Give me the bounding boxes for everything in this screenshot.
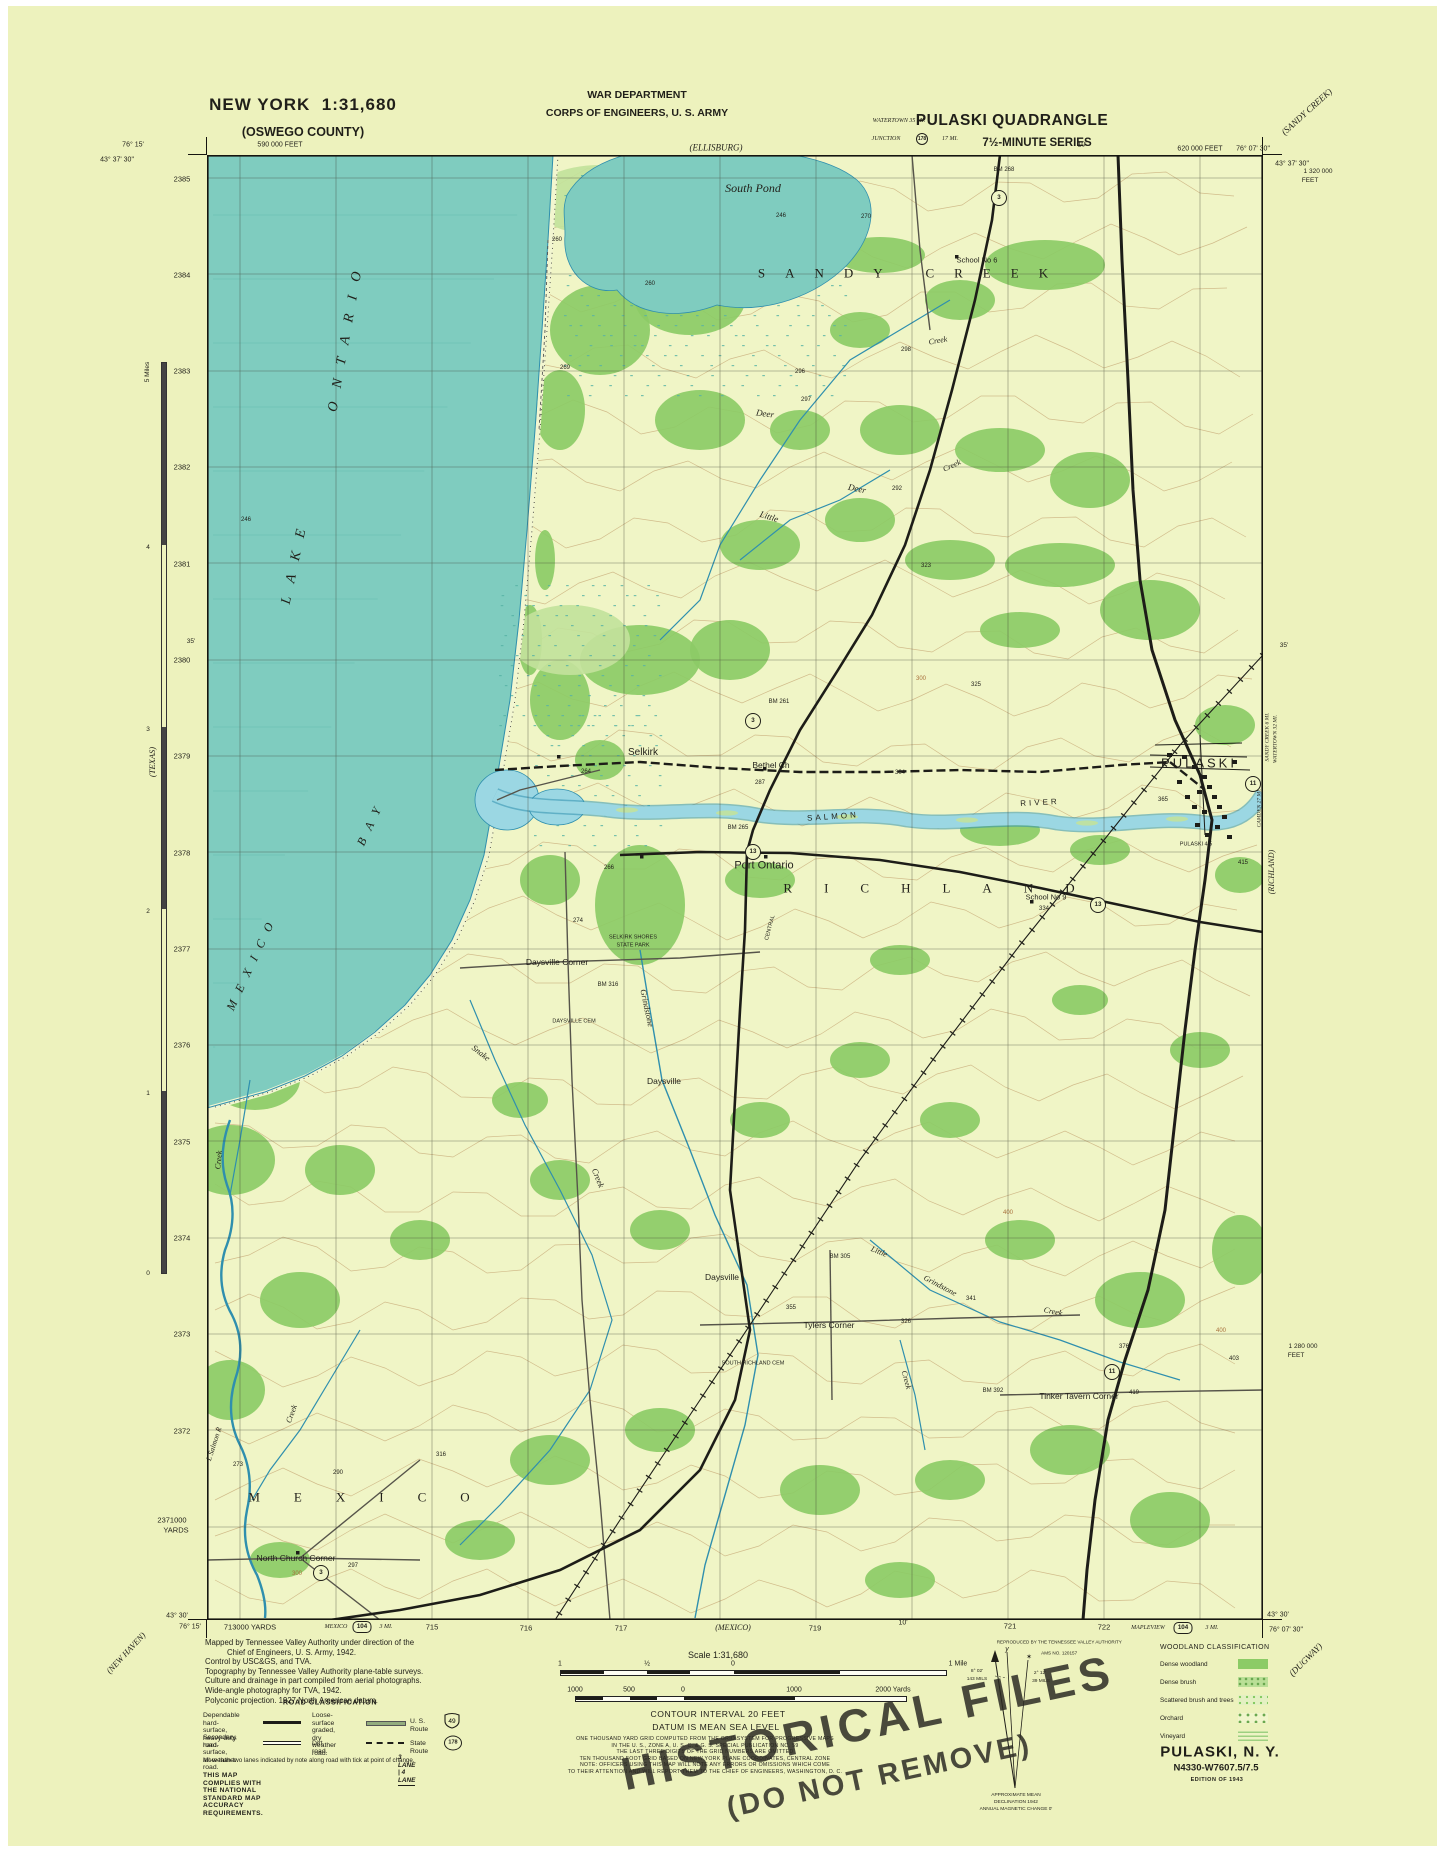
- yard-label: 2000 Yards: [875, 1687, 910, 1694]
- fine-print-line: ONE THOUSAND YARD GRID COMPUTED FROM THE…: [505, 1736, 905, 1743]
- mile-label: 1: [558, 1661, 562, 1668]
- woodland-swatch-vineyard: [1238, 1731, 1268, 1741]
- corner-tick: [1263, 154, 1282, 155]
- edition-note: EDITION OF 1943: [1191, 1777, 1244, 1783]
- dirt-road-label: Dirt road.: [312, 1740, 327, 1755]
- credit-line: Mapped by Tennessee Valley Authority und…: [205, 1638, 585, 1648]
- mile-label: 1 Mile: [949, 1661, 968, 1668]
- road-classification-title: ROAD CLASSIFICATION: [283, 1698, 377, 1707]
- dirt-road-sample: [366, 1742, 404, 1744]
- road-class-text: Secondary, hard-surface,: [203, 1734, 237, 1756]
- us-route-label: U. S. Route: [410, 1718, 428, 1733]
- war-department-line: WAR DEPARTMENT: [587, 89, 687, 101]
- secondary-road-sample: [263, 1741, 301, 1745]
- state-route-label: State Route: [410, 1740, 428, 1755]
- svg-text:49: 49: [448, 1718, 456, 1725]
- woodland-item: Scattered brush and trees: [1160, 1695, 1290, 1713]
- credit-line: Culture and drainage in part compiled fr…: [205, 1676, 585, 1686]
- fine-print-line: THE LAST THREE DIGITS OF THE GRID NUMBER…: [505, 1749, 905, 1756]
- graded-road-sample: [366, 1721, 406, 1726]
- datum-note: DATUM IS MEAN SEA LEVEL: [652, 1722, 779, 1732]
- road-class-text: Dependable hard-surface,: [203, 1712, 240, 1734]
- county-subtitle: (OSWEGO COUNTY): [242, 125, 364, 139]
- woodland-item-label: Vineyard: [1160, 1733, 1185, 1740]
- sheet-code: N4330-W7607.5/7.5: [1173, 1763, 1258, 1774]
- scale-label: Scale 1:31,680: [688, 1650, 748, 1660]
- declination-note: ANNUAL MAGNETIC CHANGE 0': [980, 1807, 1053, 1813]
- fine-print-line: TEN THOUSAND FOOT GRID BASED ON NEW YORK…: [505, 1756, 905, 1763]
- mile-scale-bar: [560, 1670, 947, 1676]
- mapping-credits: Mapped by Tennessee Valley Authority und…: [205, 1638, 585, 1705]
- yard-label: 0: [681, 1687, 685, 1694]
- woodland-item-label: Scattered brush and trees: [1160, 1697, 1234, 1704]
- grid-north-label: y: [1005, 1647, 1009, 1653]
- map-canvas: [207, 155, 1263, 1620]
- credit-line: Control by USC&GS, and TVA.: [205, 1657, 585, 1667]
- credit-line: Topography by Tennessee Valley Authority…: [205, 1667, 585, 1677]
- road-class-label: Secondary, hard-surface,all-weather road…: [203, 1734, 237, 1772]
- declination-value: 143 MILS: [967, 1677, 988, 1683]
- declination-value: 2° 12': [1034, 1671, 1046, 1677]
- us-route-shield-icon: 49: [443, 1712, 461, 1729]
- sheet-name: PULASKI, N. Y.: [1160, 1744, 1280, 1761]
- lanes-note: More than two lanes indicated by note al…: [203, 1757, 453, 1765]
- scan-crease: [1368, 0, 1408, 1854]
- corner-tick: [188, 154, 207, 155]
- state-scale-title: NEW YORK 1:31,680: [209, 95, 397, 115]
- declination-value: 8° 02': [971, 1669, 983, 1675]
- declination-value: 39 MILS: [1032, 1679, 1050, 1685]
- yard-label: 1000: [786, 1687, 802, 1694]
- woodland-title: WOODLAND CLASSIFICATION: [1160, 1644, 1290, 1651]
- scanned-topo-map-page: { "colors":{"paper":"#edf2bd","land":"#f…: [0, 0, 1445, 1854]
- series-subtitle: 7½-MINUTE SERIES: [982, 137, 1091, 149]
- mile-label: ½: [644, 1661, 650, 1668]
- yard-scale-bar: [575, 1696, 907, 1702]
- road-class-text: Loose-surface graded,: [312, 1712, 335, 1734]
- woodland-item: Dense woodland: [1160, 1659, 1290, 1677]
- contour-interval-note: CONTOUR INTERVAL 20 FEET: [651, 1709, 786, 1719]
- credit-line: Chief of Engineers, U. S. Army, 1942.: [205, 1648, 585, 1658]
- woodland-rows: Dense woodlandDense brushScattered brush…: [1160, 1659, 1290, 1749]
- fine-print-line: TO THEIR ATTENTION AND WILL REPORT THEM …: [505, 1769, 905, 1776]
- woodland-swatch-orchard: [1238, 1713, 1268, 1723]
- woodland-swatch-brush: [1238, 1677, 1268, 1687]
- quadrangle-title: PULASKI QUADRANGLE: [916, 112, 1108, 130]
- declination-note: DECLINATION 1942: [994, 1800, 1038, 1806]
- accuracy-statement: THIS MAP COMPLIES WITH THE NATIONAL STAN…: [203, 1772, 263, 1818]
- fine-print-line: IN THE U. S., ZONE A, U. S. C. & G. S. S…: [505, 1743, 905, 1750]
- woodland-item: Orchard: [1160, 1713, 1290, 1731]
- corps-of-engineers-line: CORPS OF ENGINEERS, U. S. ARMY: [546, 107, 728, 119]
- woodland-item-label: Orchard: [1160, 1715, 1183, 1722]
- woodland-item: Dense brush: [1160, 1677, 1290, 1695]
- repro-line: REPRODUCED BY THE TENNESSEE VALLEY AUTHO…: [997, 1639, 1122, 1644]
- credit-line: Wide-angle photography for TVA, 1942.: [205, 1686, 585, 1696]
- corner-tick: [188, 1619, 207, 1620]
- corner-tick: [206, 137, 207, 155]
- margin-mile-bar: [161, 362, 167, 1274]
- woodland-swatch-dense: [1238, 1659, 1268, 1669]
- woodland-item-label: Dense woodland: [1160, 1661, 1208, 1668]
- woodland-swatch-scattered: [1238, 1695, 1268, 1705]
- fine-print-line: NOTE: OFFICERS USING THIS MAP WILL NOTE …: [505, 1762, 905, 1769]
- credit-line: Polyconic projection. 1927 North America…: [205, 1696, 585, 1706]
- state-route-shield-icon: 178: [444, 1736, 462, 1751]
- star-icon: ✶: [1026, 1655, 1032, 1661]
- yard-label: 1000: [567, 1687, 583, 1694]
- mile-label: 0: [731, 1661, 735, 1668]
- grid-fine-print: ONE THOUSAND YARD GRID COMPUTED FROM THE…: [505, 1736, 905, 1776]
- hard-surface-road-sample: [263, 1721, 301, 1724]
- declination-note: APPROXIMATE MEAN: [991, 1793, 1041, 1799]
- yard-label: 500: [623, 1687, 635, 1694]
- corner-tick: [1263, 1619, 1282, 1620]
- declination-arrows-icon: [970, 1646, 1060, 1796]
- corner-tick: [206, 1620, 207, 1638]
- woodland-item-label: Dense brush: [1160, 1679, 1196, 1686]
- lanes-sample: 3 LANE | 4 LANE: [398, 1754, 415, 1786]
- corner-tick: [1262, 137, 1263, 155]
- woodland-classification-legend: WOODLAND CLASSIFICATION Dense woodlandDe…: [1160, 1644, 1290, 1749]
- corner-tick: [1262, 1620, 1263, 1638]
